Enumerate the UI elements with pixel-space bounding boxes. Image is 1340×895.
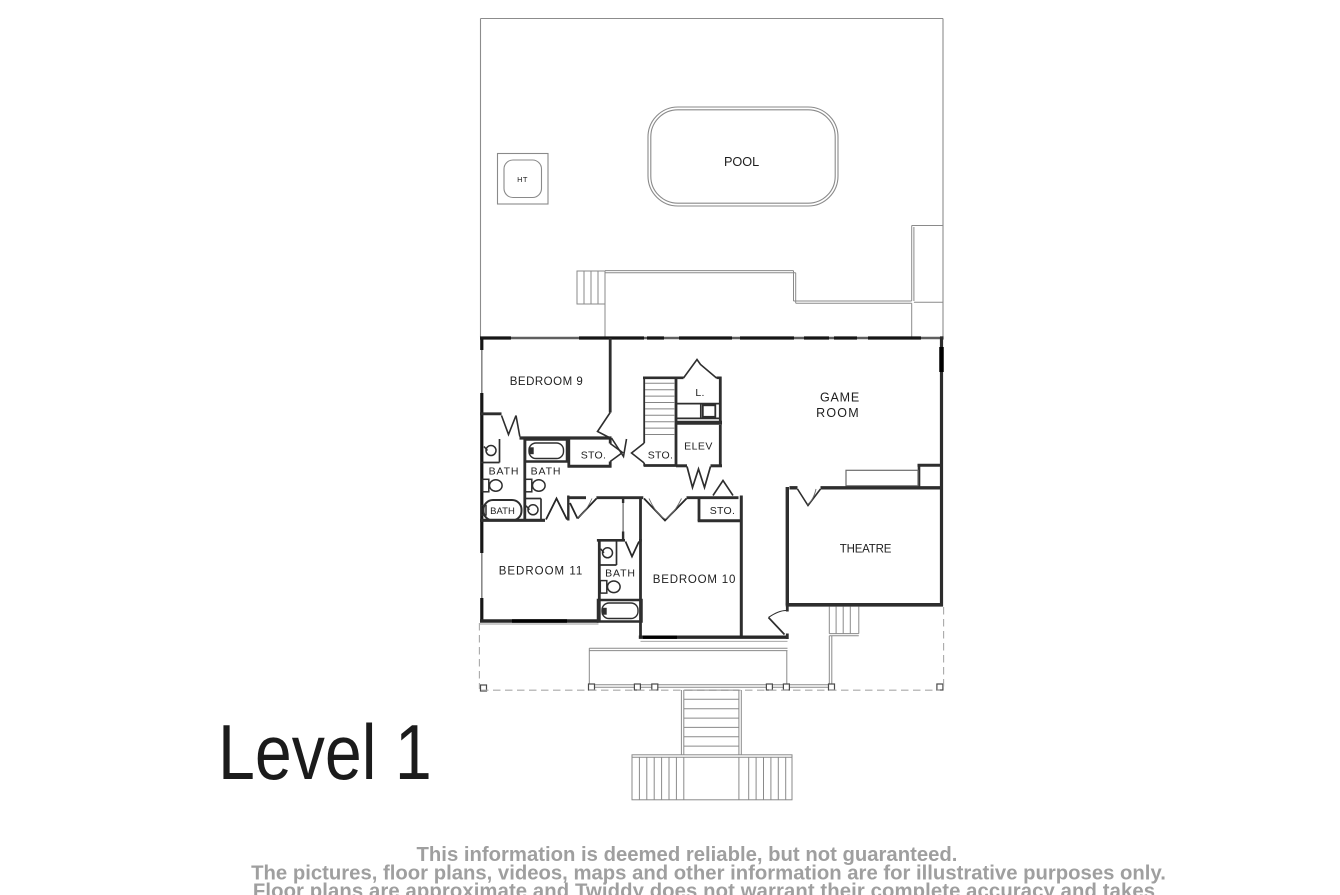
svg-text:STO.: STO. xyxy=(648,450,674,462)
svg-text:BEDROOM 11: BEDROOM 11 xyxy=(499,566,584,578)
svg-text:BATH: BATH xyxy=(531,466,562,478)
svg-text:THEATRE: THEATRE xyxy=(840,544,892,556)
svg-text:GAME: GAME xyxy=(820,391,860,405)
svg-text:ROOM: ROOM xyxy=(816,406,860,420)
svg-text:BEDROOM 10: BEDROOM 10 xyxy=(653,574,736,586)
svg-text:STO.: STO. xyxy=(710,505,736,517)
svg-text:ELEV: ELEV xyxy=(684,441,713,453)
svg-text:BATH: BATH xyxy=(605,568,636,580)
svg-text:L.: L. xyxy=(695,387,704,399)
svg-text:BEDROOM 9: BEDROOM 9 xyxy=(510,376,584,388)
svg-text:Level 1: Level 1 xyxy=(218,709,432,796)
svg-text:POOL: POOL xyxy=(724,155,759,169)
svg-text:BATH: BATH xyxy=(489,466,520,478)
svg-text:Floor plans are approximate an: Floor plans are approximate and Twiddy d… xyxy=(253,881,1155,895)
svg-text:BATH: BATH xyxy=(490,506,515,517)
svg-text:HT: HT xyxy=(517,175,528,184)
svg-text:STO.: STO. xyxy=(581,450,607,462)
